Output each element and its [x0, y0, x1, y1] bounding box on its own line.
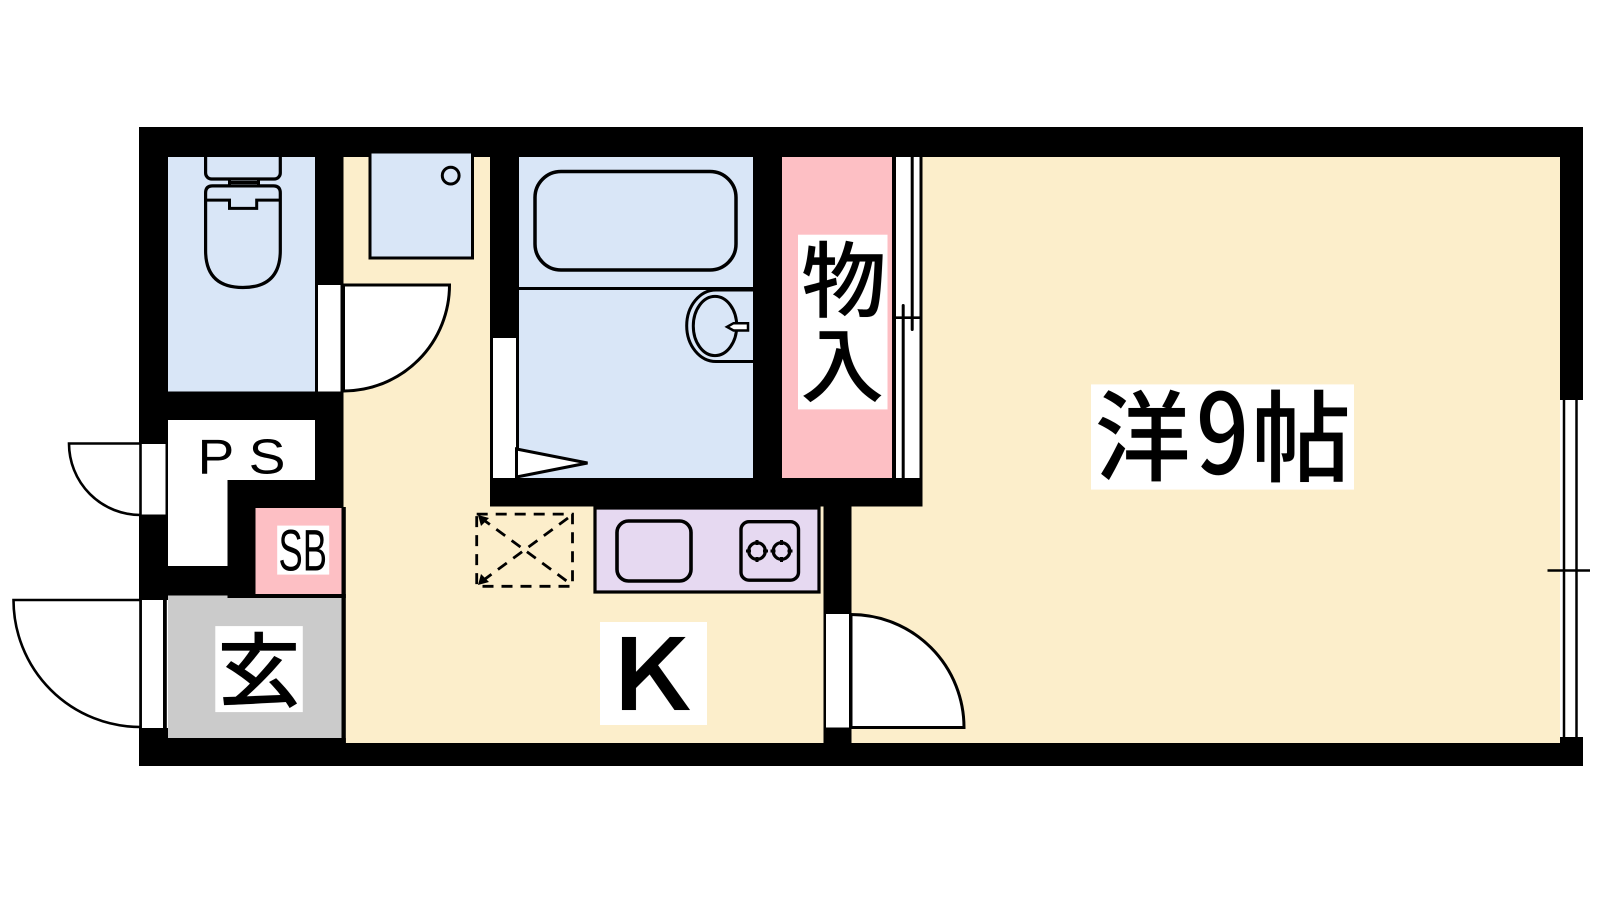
svg-text:P S: P S — [198, 431, 286, 485]
svg-text:SB: SB — [279, 519, 328, 584]
